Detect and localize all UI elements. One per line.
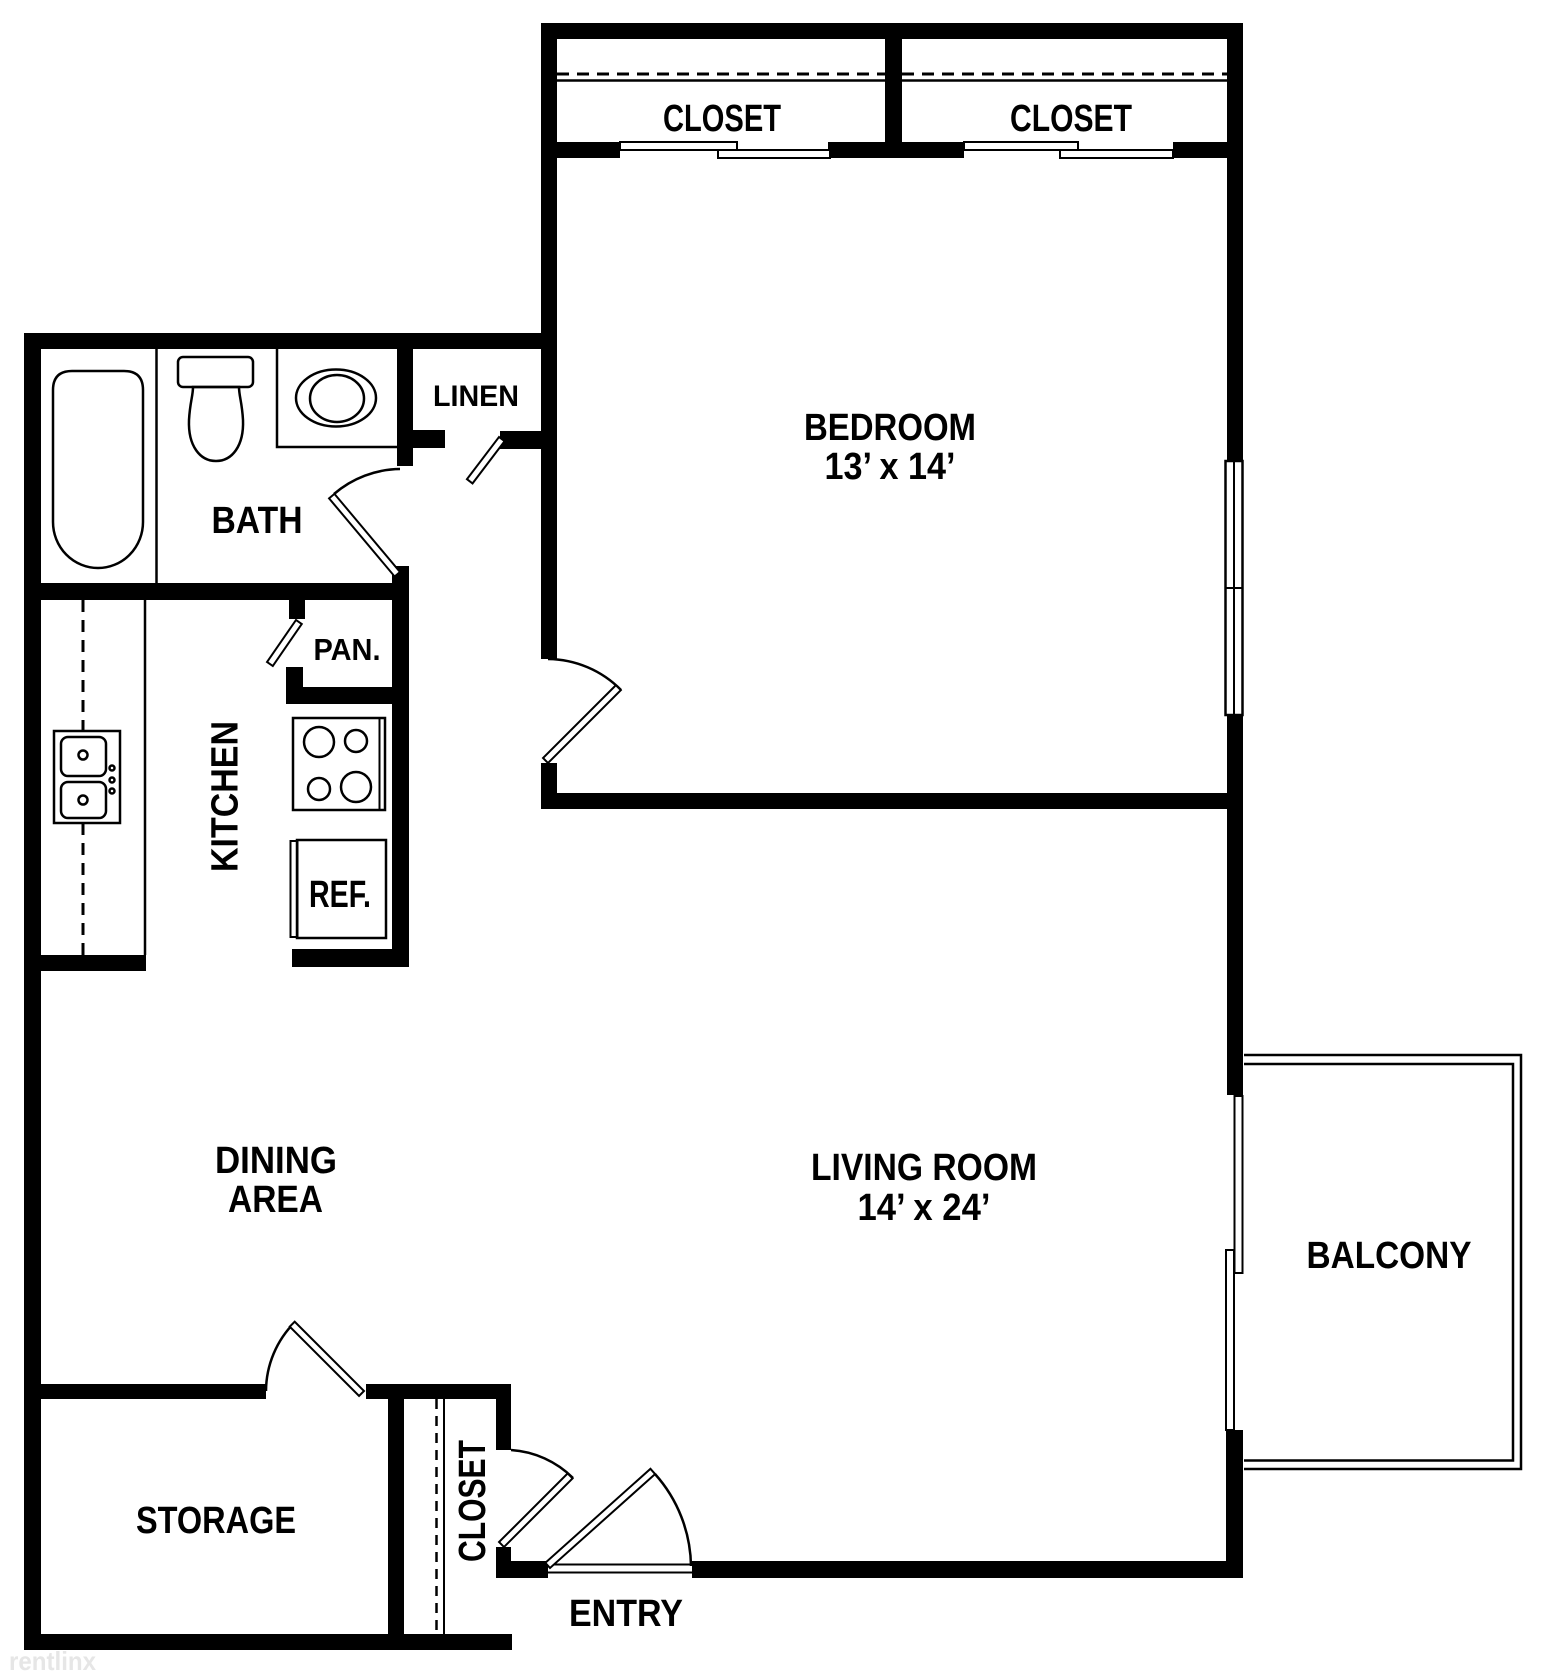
- svg-text:13’ x 14’: 13’ x 14’: [825, 446, 956, 488]
- svg-text:BALCONY: BALCONY: [1307, 1235, 1472, 1277]
- svg-text:BATH: BATH: [212, 500, 303, 542]
- svg-text:DINING: DINING: [215, 1140, 337, 1182]
- svg-text:14’ x 24’: 14’ x 24’: [858, 1187, 991, 1229]
- svg-text:BEDROOM: BEDROOM: [804, 407, 976, 449]
- svg-text:STORAGE: STORAGE: [136, 1500, 296, 1542]
- svg-text:CLOSET: CLOSET: [1010, 98, 1132, 140]
- svg-text:LINEN: LINEN: [433, 380, 519, 413]
- svg-text:rentlinx: rentlinx: [9, 1646, 96, 1676]
- svg-text:AREA: AREA: [228, 1179, 323, 1221]
- svg-text:LIVING ROOM: LIVING ROOM: [811, 1147, 1037, 1189]
- svg-text:PAN.: PAN.: [314, 632, 381, 667]
- svg-text:REF.: REF.: [309, 874, 371, 916]
- svg-text:CLOSET: CLOSET: [452, 1440, 494, 1562]
- svg-text:KITCHEN: KITCHEN: [205, 721, 247, 872]
- svg-text:ENTRY: ENTRY: [569, 1593, 683, 1635]
- svg-text:CLOSET: CLOSET: [663, 98, 781, 140]
